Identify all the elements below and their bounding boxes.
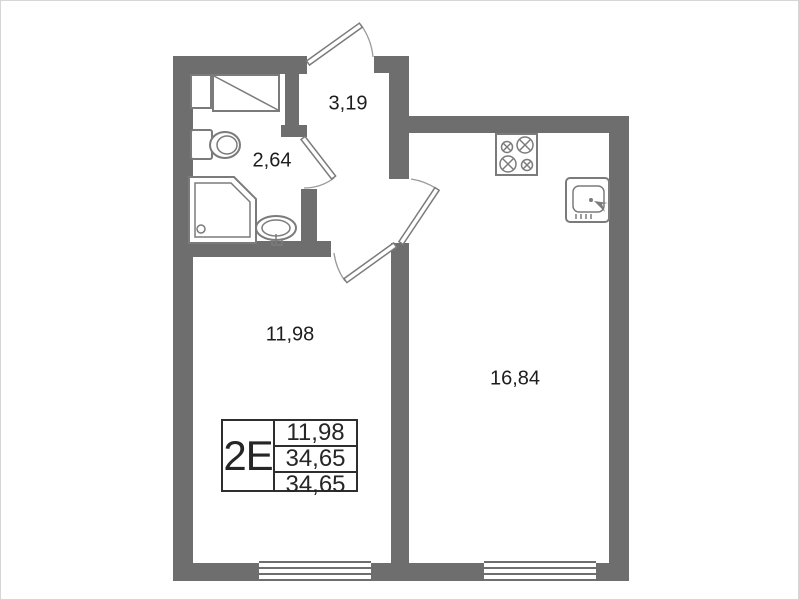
entrance-door-swing-icon	[307, 23, 373, 65]
washbasin-icon	[256, 216, 296, 245]
legend-overall-area: 34,65	[275, 473, 356, 497]
window-living-icon	[259, 562, 371, 580]
window-kitchen-icon	[484, 562, 596, 580]
toilet-icon	[191, 130, 240, 159]
unit-legend-table: 2E 11,98 34,65 34,65	[221, 419, 358, 492]
hallway-area-label: 3,19	[329, 93, 368, 116]
stove-icon	[496, 134, 537, 175]
wall-bathroom-door-jamb	[281, 125, 307, 137]
floor-plan-drawing	[1, 1, 799, 600]
floor-plan: 3,19 2,64 11,98 16,84 2E 11,98 34,65 34,…	[0, 0, 799, 600]
living-area-label: 11,98	[266, 324, 315, 347]
wall-bottom-middle	[371, 563, 484, 581]
unit-type-code: 2E	[223, 421, 275, 490]
wall-bathroom-right-upper	[285, 74, 299, 127]
walls	[173, 56, 629, 581]
kitchen-door-swing-icon	[399, 179, 439, 244]
wall-bottom-right	[596, 563, 629, 581]
bathroom-area-label: 2,64	[253, 150, 292, 173]
bathroom-door-swing-icon	[301, 136, 336, 188]
legend-total-area: 34,65	[275, 447, 356, 473]
shower-tray-icon	[189, 177, 256, 243]
kitchen-sink-icon	[566, 178, 609, 222]
wall-right	[609, 116, 629, 581]
wall-bathroom-right-lower	[301, 189, 317, 243]
wall-kitchen-top	[399, 116, 629, 133]
unit-legend-values: 11,98 34,65 34,65	[275, 421, 356, 490]
wall-top-bathroom	[173, 56, 307, 74]
wall-middle	[391, 243, 409, 581]
legend-living-area: 11,98	[275, 421, 356, 447]
wall-bottom-left	[173, 563, 259, 581]
living-door-swing-icon	[334, 243, 396, 283]
vent-shaft-icon	[191, 75, 279, 111]
kitchen-area-label: 16,84	[490, 368, 540, 391]
